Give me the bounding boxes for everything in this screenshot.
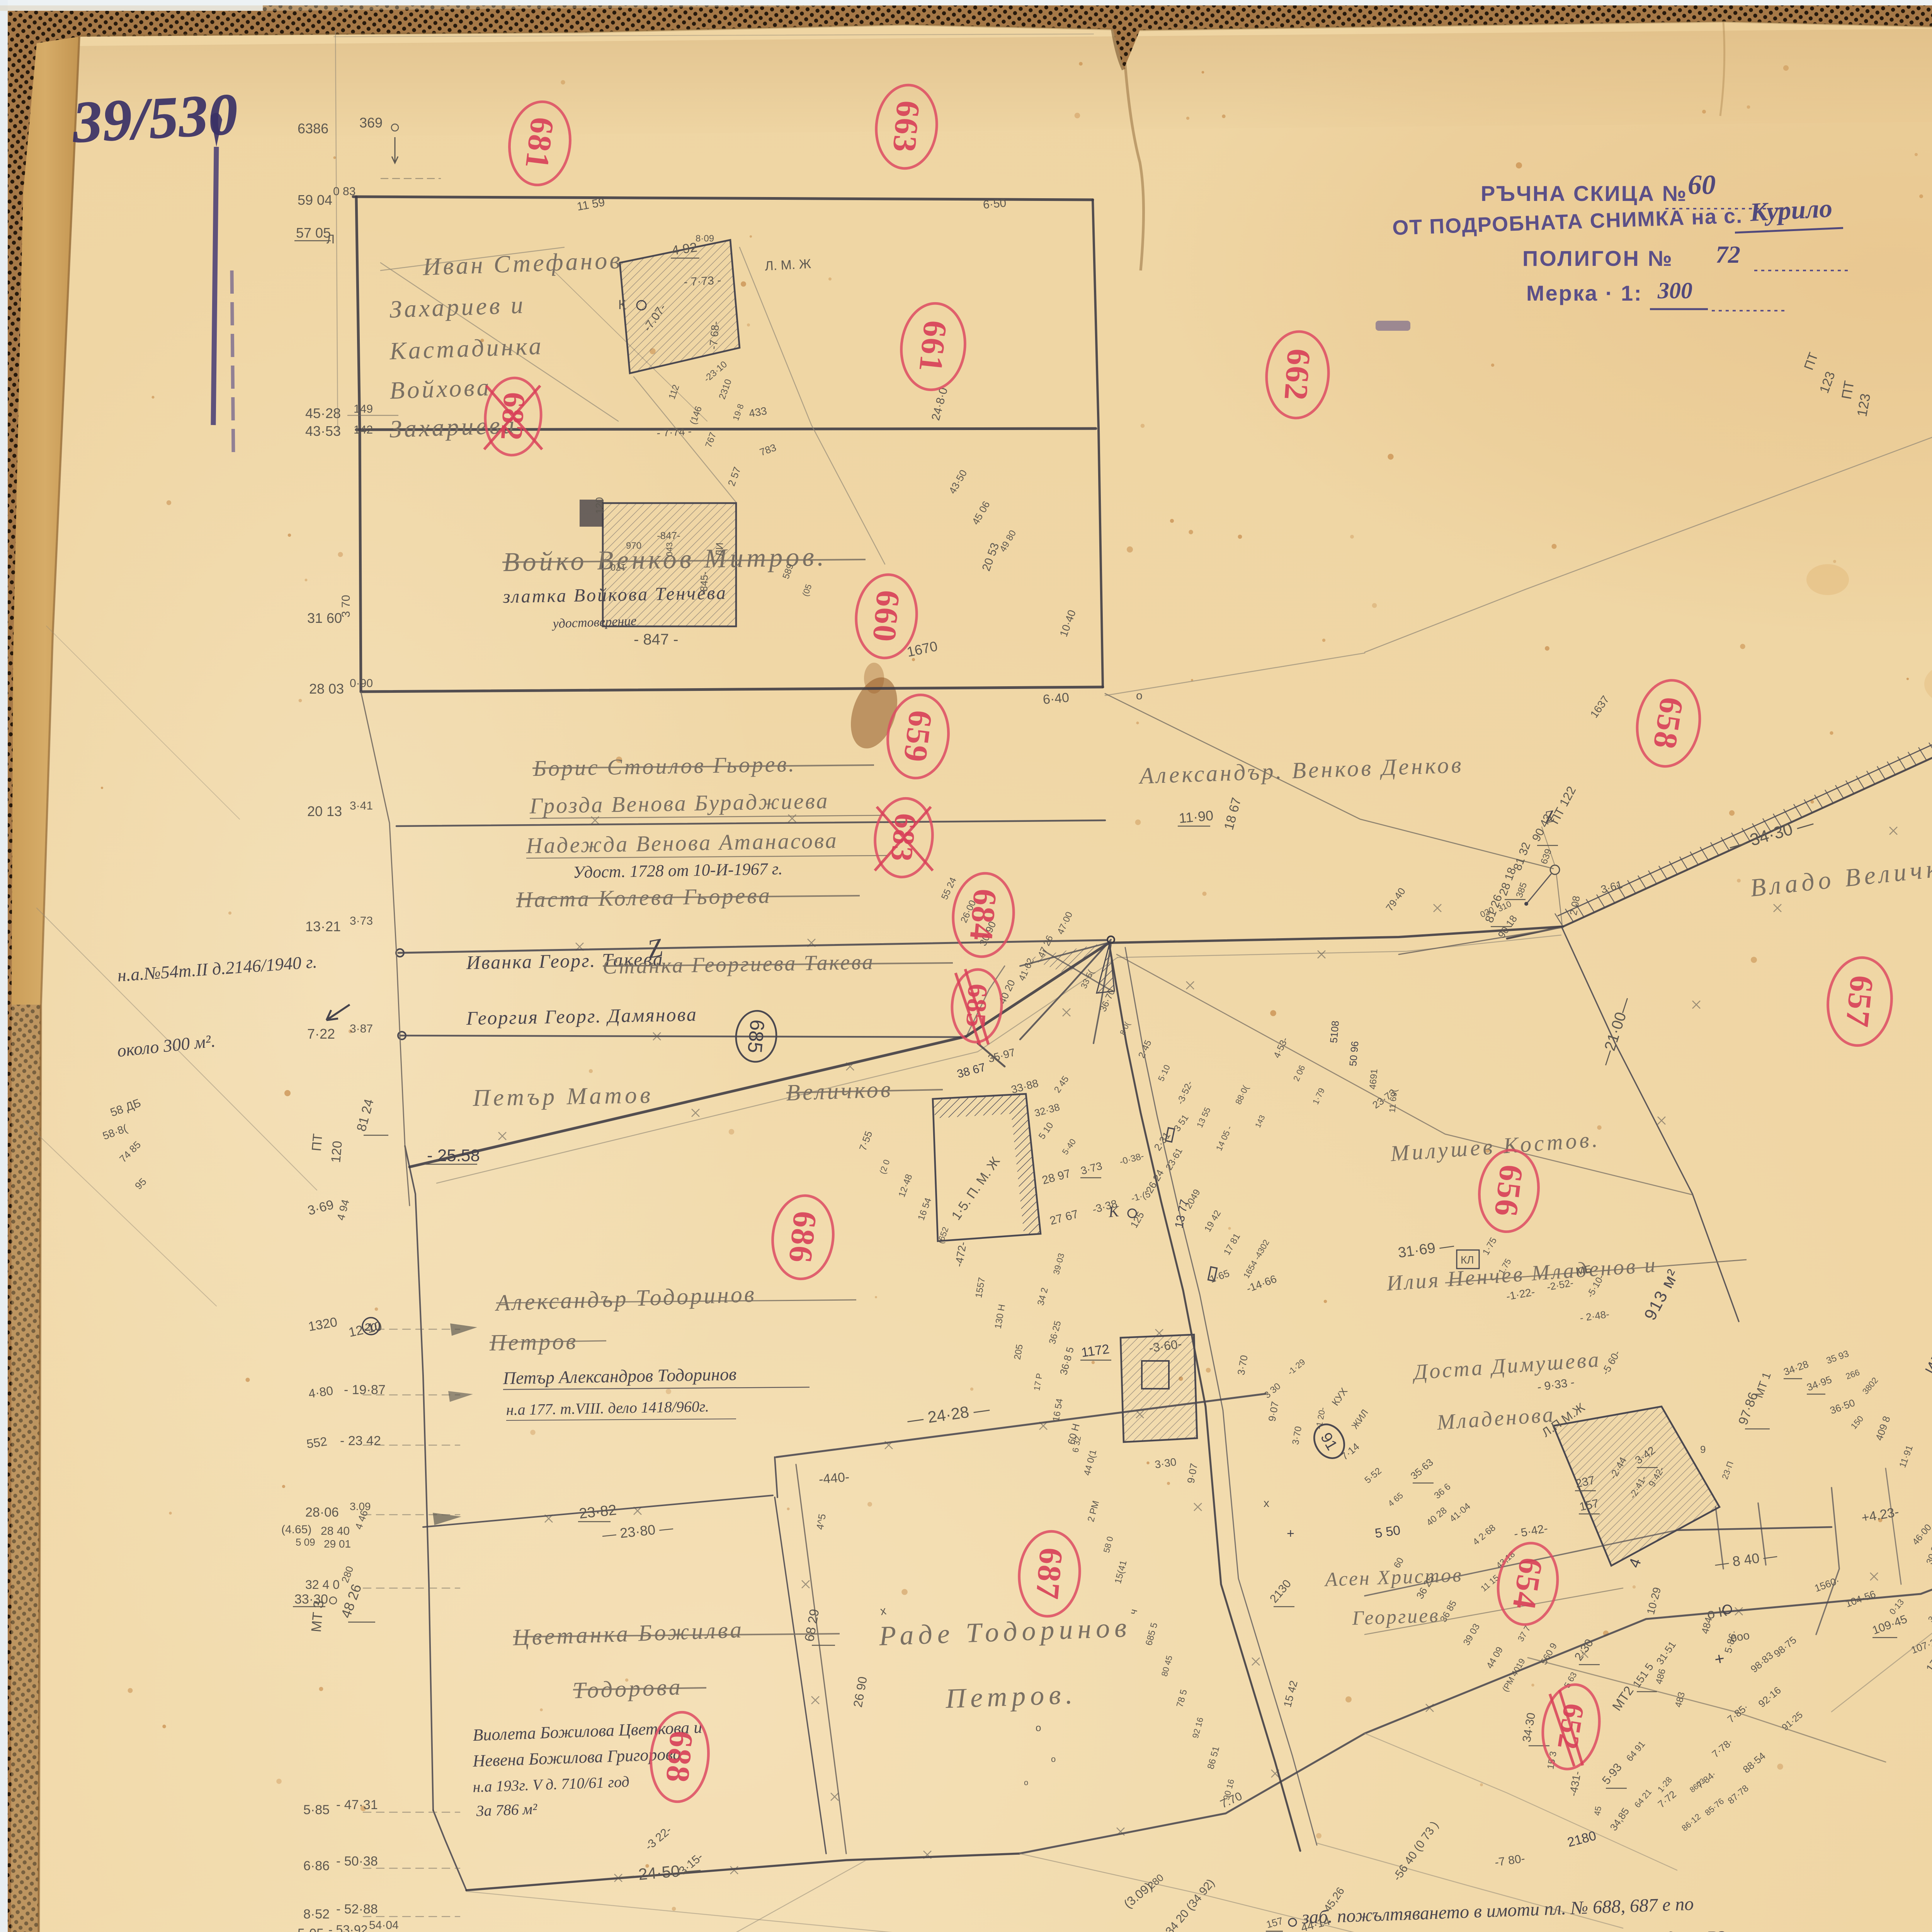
svg-text:о: о bbox=[1024, 1779, 1028, 1787]
svg-text:Курило: Курило bbox=[1749, 193, 1833, 227]
svg-text:+: + bbox=[1287, 1526, 1294, 1541]
svg-text:0 83: 0 83 bbox=[333, 185, 355, 198]
svg-text:Георгия Георг. Дамянова: Георгия Георг. Дамянова bbox=[466, 1003, 697, 1029]
svg-text:142: 142 bbox=[354, 423, 373, 436]
svg-text:6386: 6386 bbox=[298, 121, 328, 136]
svg-text:660: 660 bbox=[866, 589, 907, 644]
svg-text:28 03: 28 03 bbox=[309, 681, 344, 697]
svg-text:-7 68-: -7 68- bbox=[707, 321, 721, 350]
svg-text:9: 9 bbox=[1700, 1444, 1706, 1455]
svg-text:К: К bbox=[618, 298, 626, 312]
svg-text:50 96: 50 96 bbox=[1347, 1041, 1361, 1066]
svg-text:31 60: 31 60 bbox=[307, 610, 342, 626]
svg-text:686: 686 bbox=[782, 1209, 824, 1265]
svg-text:Л. М. Ж: Л. М. Ж bbox=[764, 257, 811, 274]
svg-text:043: 043 bbox=[665, 542, 674, 556]
svg-text:60: 60 bbox=[1688, 169, 1716, 200]
svg-text:-847-: -847- bbox=[657, 530, 680, 541]
svg-text:- 23 42: - 23 42 bbox=[340, 1434, 381, 1448]
svg-text:20: 20 bbox=[365, 1321, 377, 1333]
svg-text:-845-: -845- bbox=[698, 571, 710, 595]
svg-text:4691: 4691 bbox=[1367, 1068, 1380, 1090]
svg-text:РЪЧНА СКИЦА №: РЪЧНА СКИЦА № bbox=[1481, 181, 1687, 206]
svg-text:28 40: 28 40 bbox=[321, 1525, 350, 1537]
svg-text:681: 681 bbox=[518, 115, 561, 172]
svg-text:120: 120 bbox=[594, 497, 605, 514]
svg-text:663: 663 bbox=[886, 99, 927, 155]
svg-text:6·50: 6·50 bbox=[983, 197, 1007, 211]
svg-text:Удост. 1728 от 10-И-1967 г.: Удост. 1728 от 10-И-1967 г. bbox=[573, 859, 782, 882]
svg-text:о: о bbox=[1136, 689, 1143, 702]
svg-text:656: 656 bbox=[1487, 1163, 1531, 1219]
svg-text:Петров.: Петров. bbox=[945, 1679, 1078, 1714]
svg-text:369: 369 bbox=[359, 115, 383, 131]
svg-text:57 05: 57 05 bbox=[296, 225, 331, 241]
svg-text:8·52: 8·52 bbox=[303, 1907, 330, 1922]
svg-text:970: 970 bbox=[626, 541, 641, 551]
svg-text:н.а 177. т.VIII. дело 1418/960: н.а 177. т.VIII. дело 1418/960г. bbox=[506, 1398, 709, 1418]
svg-text:Георгиев: Георгиев bbox=[1351, 1604, 1440, 1629]
svg-text:684: 684 bbox=[963, 888, 1004, 943]
svg-text:659: 659 bbox=[896, 708, 940, 765]
svg-text:о: о bbox=[1036, 1722, 1041, 1733]
svg-text:3а 786 м²: 3а 786 м² bbox=[476, 1800, 538, 1820]
svg-text:0·90: 0·90 bbox=[350, 677, 373, 690]
svg-text:688: 688 bbox=[659, 1730, 700, 1785]
svg-text:11·90: 11·90 bbox=[1178, 807, 1214, 826]
svg-text:златка Войкова Тенчева: златка Войкова Тенчева bbox=[502, 583, 727, 607]
svg-text:45: 45 bbox=[1592, 1805, 1603, 1816]
svg-text:- 53·92: - 53·92 bbox=[328, 1923, 367, 1932]
svg-text:х: х bbox=[1264, 1497, 1269, 1510]
svg-text:149: 149 bbox=[354, 403, 373, 415]
svg-text:5·05: 5·05 bbox=[298, 1926, 324, 1932]
svg-text:300: 300 bbox=[1657, 278, 1692, 303]
svg-text:170: 170 bbox=[611, 562, 626, 572]
svg-text:5·85: 5·85 bbox=[303, 1803, 330, 1817]
svg-text:Грозда Венова Бураджиева: Грозда Венова Бураджиева bbox=[529, 788, 829, 818]
svg-text:- 19·87: - 19·87 bbox=[344, 1383, 386, 1397]
svg-text:о: о bbox=[1051, 1754, 1056, 1764]
svg-text:54·04: 54·04 bbox=[369, 1919, 399, 1932]
svg-text:13·21: 13·21 bbox=[305, 918, 341, 934]
svg-text:Петър Матов: Петър Матов bbox=[472, 1082, 654, 1111]
svg-text:687: 687 bbox=[1029, 1546, 1070, 1602]
svg-text:552: 552 bbox=[306, 1434, 328, 1451]
svg-text:- 25.58: - 25.58 bbox=[427, 1146, 480, 1165]
svg-text:29 01: 29 01 bbox=[324, 1538, 351, 1550]
svg-text:- 7·73 -: - 7·73 - bbox=[684, 274, 721, 289]
svg-text:20 13: 20 13 bbox=[307, 803, 342, 819]
svg-text:662: 662 bbox=[1277, 347, 1318, 402]
svg-text:- 847 -: - 847 - bbox=[634, 631, 679, 648]
svg-text:8·09: 8·09 bbox=[696, 233, 714, 244]
svg-text:28·06: 28·06 bbox=[305, 1505, 339, 1520]
svg-text:Мерка · 1:: Мерка · 1: bbox=[1526, 281, 1643, 305]
svg-text:- 7·74 -: - 7·74 - bbox=[656, 425, 692, 439]
svg-text:7·22: 7·22 bbox=[307, 1026, 335, 1042]
svg-text:5 09: 5 09 bbox=[296, 1536, 315, 1548]
svg-text:- 47·31: - 47·31 bbox=[336, 1798, 378, 1812]
svg-text:3 70: 3 70 bbox=[340, 595, 352, 617]
svg-text:ЛИ: ЛИ bbox=[713, 542, 725, 556]
svg-text:Л: Л bbox=[327, 232, 335, 246]
svg-text:ПТ: ПТ bbox=[1838, 379, 1857, 400]
svg-text:72: 72 bbox=[1716, 241, 1740, 268]
svg-text:Захариев и: Захариев и bbox=[389, 291, 526, 323]
svg-text:6·40: 6·40 bbox=[1042, 690, 1070, 707]
svg-text:6·86: 6·86 bbox=[303, 1859, 330, 1873]
svg-text:удостоверение: удостоверение bbox=[551, 614, 637, 631]
svg-text:661: 661 bbox=[912, 319, 954, 374]
svg-text:- 50·38: - 50·38 bbox=[336, 1854, 378, 1869]
svg-text:(4.65): (4.65) bbox=[281, 1523, 311, 1536]
svg-text:3·87: 3·87 bbox=[350, 1022, 373, 1035]
svg-text:ПОЛИГОН №: ПОЛИГОН № bbox=[1522, 246, 1673, 270]
svg-text:Петър Александров Тодоринов: Петър Александров Тодоринов bbox=[502, 1364, 736, 1388]
svg-text:45·28: 45·28 bbox=[305, 405, 341, 421]
svg-text:685: 685 bbox=[743, 1019, 768, 1054]
svg-text:- 52·88: - 52·88 bbox=[336, 1902, 378, 1917]
svg-text:657: 657 bbox=[1838, 974, 1881, 1029]
svg-text:МТ 3: МТ 3 bbox=[308, 1600, 327, 1633]
svg-text:Войхова: Войхова bbox=[389, 373, 492, 404]
svg-text:120: 120 bbox=[328, 1140, 345, 1163]
svg-text:3·41: 3·41 bbox=[350, 799, 373, 812]
svg-text:ПТ: ПТ bbox=[309, 1133, 325, 1151]
svg-text:-440-: -440- bbox=[818, 1469, 850, 1487]
svg-text:5108: 5108 bbox=[1328, 1020, 1341, 1043]
svg-text:Кастадинка: Кастадинка bbox=[389, 332, 544, 365]
svg-text:59 04: 59 04 bbox=[298, 192, 332, 208]
svg-text:КЛ: КЛ bbox=[1461, 1254, 1474, 1266]
svg-text:43·53: 43·53 bbox=[305, 423, 341, 439]
svg-text:3·73: 3·73 bbox=[350, 915, 373, 927]
svg-text:32 4 0: 32 4 0 bbox=[305, 1578, 340, 1592]
